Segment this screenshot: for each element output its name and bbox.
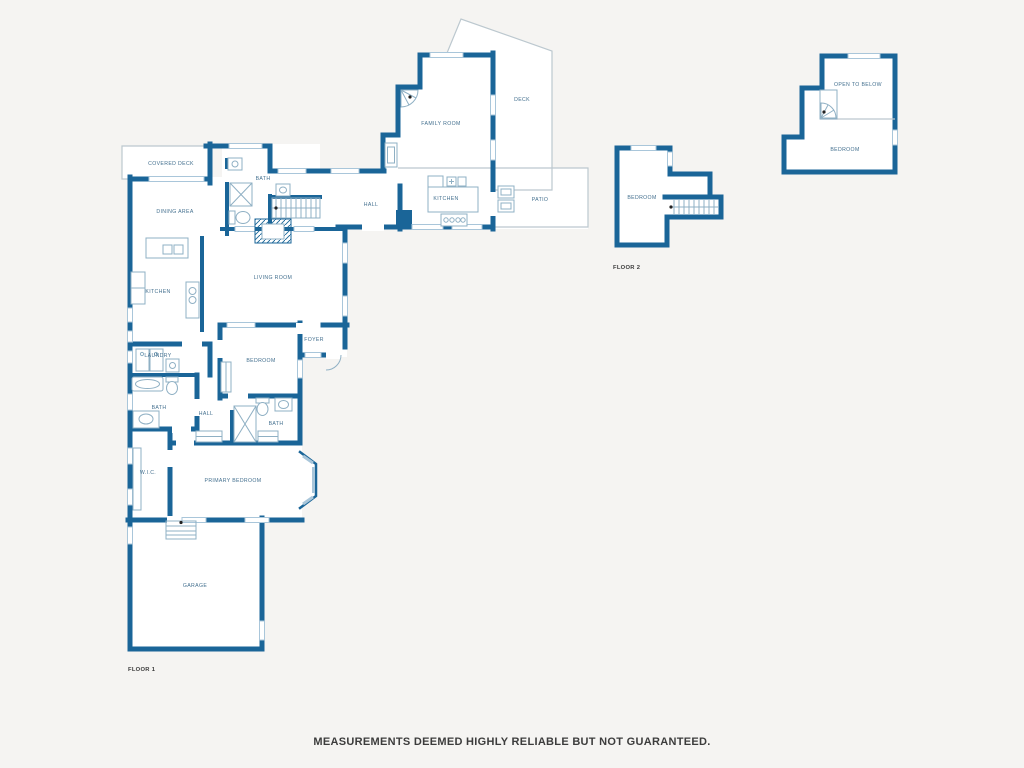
disclaimer-text: MEASUREMENTS DEEMED HIGHLY RELIABLE BUT …	[0, 736, 1024, 748]
room-label-family-room: FAMILY ROOM	[421, 121, 460, 127]
toilet-upper	[229, 211, 250, 224]
room-label-bedroom: BEDROOM	[246, 358, 275, 364]
room-label-foyer: FOYER	[304, 337, 324, 343]
bathtub	[132, 377, 163, 391]
window-seat	[385, 143, 397, 167]
room-label-dining-area: DINING AREA	[156, 209, 193, 215]
room-label-bedroom-f2-right: BEDROOM	[830, 147, 859, 153]
room-label-hall-upper: HALL	[364, 202, 378, 208]
room-label-hall-lower: HALL	[199, 411, 213, 417]
room-label-patio: PATIO	[532, 197, 549, 203]
room-label-kitchen: KITCHEN	[145, 289, 170, 295]
floor-label-floor-2: FLOOR 2	[613, 265, 640, 271]
room-label-open-to-below: OPEN TO BELOW	[834, 82, 882, 88]
vanity-left	[133, 411, 159, 428]
room-label-kitchen-upper: KITCHEN	[433, 196, 458, 202]
shower-upper	[230, 183, 252, 206]
room-label-bath-middle: BATH	[269, 421, 284, 427]
room-label-wic: W.I.C.	[140, 470, 156, 476]
floor-label-floor-1: FLOOR 1	[128, 667, 156, 673]
room-label-deck: DECK	[514, 97, 530, 103]
room-label-covered-deck: COVERED DECK	[148, 161, 194, 167]
room-label-living-room: LIVING ROOM	[254, 275, 292, 281]
floor-plan-canvas: COVERED DECKDINING AREABATHHALLFAMILY RO…	[0, 0, 1024, 768]
room-label-garage: GARAGE	[183, 583, 207, 589]
floor-plan-page: { "page": { "disclaimer": "MEASUREMENTS …	[0, 0, 1024, 768]
room-fills	[122, 19, 895, 649]
room-label-bath-upper: BATH	[256, 176, 271, 182]
sink-upper-2	[276, 184, 290, 196]
room-label-primary-bedroom: PRIMARY BEDROOM	[205, 478, 262, 484]
room-label-bath-left: BATH	[152, 405, 167, 411]
sink-middle	[275, 398, 292, 411]
shower-middle	[234, 406, 256, 442]
sink-upper-1	[228, 158, 242, 170]
toilet-middle	[256, 398, 269, 416]
room-label-bedroom-f2-left: BEDROOM	[627, 195, 656, 201]
fireplace	[255, 219, 291, 243]
room-label-laundry: LAUNDRY	[144, 353, 171, 359]
toilet-left	[166, 377, 178, 395]
